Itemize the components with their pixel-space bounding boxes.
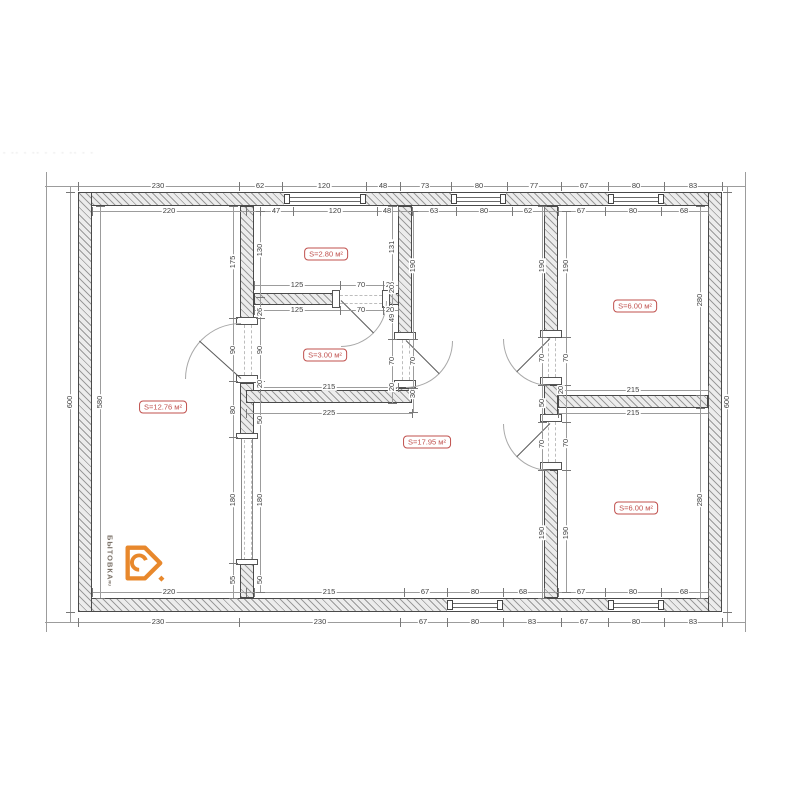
dim-line (254, 285, 398, 286)
dim-label: 67 (579, 618, 589, 626)
wall-segment (78, 192, 92, 612)
dim-label: 70 (538, 353, 546, 363)
dim-label: 70 (409, 356, 417, 366)
dim-label: 215 (626, 386, 641, 394)
dim-label: 225 (322, 409, 337, 417)
dim-label: 230 (151, 618, 166, 626)
dim-label: 26 (256, 307, 264, 317)
dim-label: 73 (420, 182, 430, 190)
wall-segment (708, 192, 722, 612)
dim-label: 280 (696, 493, 704, 508)
dim-label: 90 (229, 345, 237, 355)
dim-label: 70 (388, 356, 396, 366)
opening-dashed-line (244, 440, 252, 560)
watermark-text: - -- - -- - - - -- - - (3, 150, 95, 157)
dim-label: 80 (479, 207, 489, 215)
dim-line (413, 211, 414, 412)
dim-label: 68 (679, 207, 689, 215)
dim-label: 180 (256, 493, 264, 508)
dim-label: 215 (322, 588, 337, 596)
dim-line (46, 172, 47, 632)
dim-label: 67 (579, 182, 589, 190)
dim-label: 70 (356, 306, 366, 314)
room-area-label: S=6.00 м² (613, 300, 657, 313)
dim-label: 83 (688, 182, 698, 190)
dim-label: 50 (256, 415, 264, 425)
window (608, 193, 664, 205)
dim-label: 80 (470, 618, 480, 626)
dim-label: 68 (679, 588, 689, 596)
dim-label: 68 (518, 588, 528, 596)
dim-label: 20 (388, 382, 396, 392)
dim-label: 130 (256, 243, 264, 258)
dim-line (254, 310, 398, 311)
dim-label: 120 (317, 182, 332, 190)
dim-label: 80 (631, 618, 641, 626)
dim-label: 215 (322, 383, 337, 391)
dim-label: 20 (256, 379, 264, 389)
dim-line (745, 172, 746, 632)
room-area-label: S=2.80 м² (304, 248, 348, 261)
dim-label: 47 (271, 207, 281, 215)
dim-label: 131 (388, 240, 396, 255)
dim-label: 48 (382, 207, 392, 215)
dim-label: 230 (151, 182, 166, 190)
dim-label: 125 (290, 281, 305, 289)
logo-text: БЫТОВКАRU (106, 535, 114, 586)
window (447, 599, 503, 611)
wall-segment (240, 206, 254, 318)
room-area-label: S=6.00 м² (614, 502, 658, 515)
dim-label: 120 (328, 207, 343, 215)
dim-label: 50 (256, 575, 264, 585)
dim-label: 63 (429, 207, 439, 215)
dim-label: 80 (631, 182, 641, 190)
dim-label: 600 (66, 395, 74, 410)
window (451, 193, 506, 205)
dim-label: 220 (162, 207, 177, 215)
window (284, 193, 366, 205)
dim-line (260, 211, 261, 592)
dim-label: 80 (474, 182, 484, 190)
dim-label: 190 (538, 259, 546, 274)
dim-label: 180 (229, 493, 237, 508)
wall-segment (254, 293, 340, 305)
dim-label: 62 (255, 182, 265, 190)
dim-label: 83 (688, 618, 698, 626)
dim-label: 20 (557, 385, 565, 395)
dim-label: 49 (388, 313, 396, 323)
dim-label: 125 (290, 306, 305, 314)
dim-line (92, 211, 708, 212)
dim-label: 80 (470, 588, 480, 596)
logo-bytovka: БЫТОВКАRU (106, 533, 168, 595)
dim-label: 20 (388, 284, 396, 294)
floor-plan: - -- - -- - - - -- - - (0, 0, 800, 800)
dim-label: 50 (538, 398, 546, 408)
dim-label: 175 (229, 255, 237, 270)
dim-label: 70 (562, 353, 570, 363)
dim-label: 80 (229, 405, 237, 415)
dim-label: 80 (628, 588, 638, 596)
dim-label: 67 (576, 588, 586, 596)
dim-line (92, 592, 708, 593)
door-frame (332, 290, 340, 308)
dim-label: 580 (96, 395, 104, 410)
dim-line (700, 206, 701, 598)
dim-label: 215 (626, 409, 641, 417)
dim-label: 83 (527, 618, 537, 626)
dim-label: 190 (562, 526, 570, 541)
dim-label: 70 (538, 439, 546, 449)
room-area-label: S=12.76 м² (139, 401, 187, 414)
dim-label: 67 (420, 588, 430, 596)
dim-label: 90 (256, 345, 264, 355)
window (608, 599, 664, 611)
dim-label: 30 (409, 389, 417, 399)
wall-segment (558, 395, 708, 408)
dim-label: 70 (356, 281, 366, 289)
dim-label: 67 (576, 207, 586, 215)
room-area-label: S=17.95 м² (403, 436, 451, 449)
door-gap-dashes (244, 325, 252, 375)
dim-label: 190 (409, 259, 417, 274)
dim-label: 600 (723, 395, 731, 410)
dim-label: 280 (696, 293, 704, 308)
dim-label: 80 (628, 207, 638, 215)
dim-label: 55 (229, 575, 237, 585)
room-area-label: S=3.00 м² (303, 349, 347, 362)
dim-label: 62 (523, 207, 533, 215)
dim-label: 48 (378, 182, 388, 190)
dim-label: 190 (538, 526, 546, 541)
dim-label: 67 (418, 618, 428, 626)
dim-label: 230 (313, 618, 328, 626)
door-frame (236, 433, 258, 439)
dim-label: 190 (562, 259, 570, 274)
door-frame (236, 559, 258, 565)
house-icon (120, 541, 166, 587)
dim-label: 77 (529, 182, 539, 190)
dim-label: 70 (562, 438, 570, 448)
